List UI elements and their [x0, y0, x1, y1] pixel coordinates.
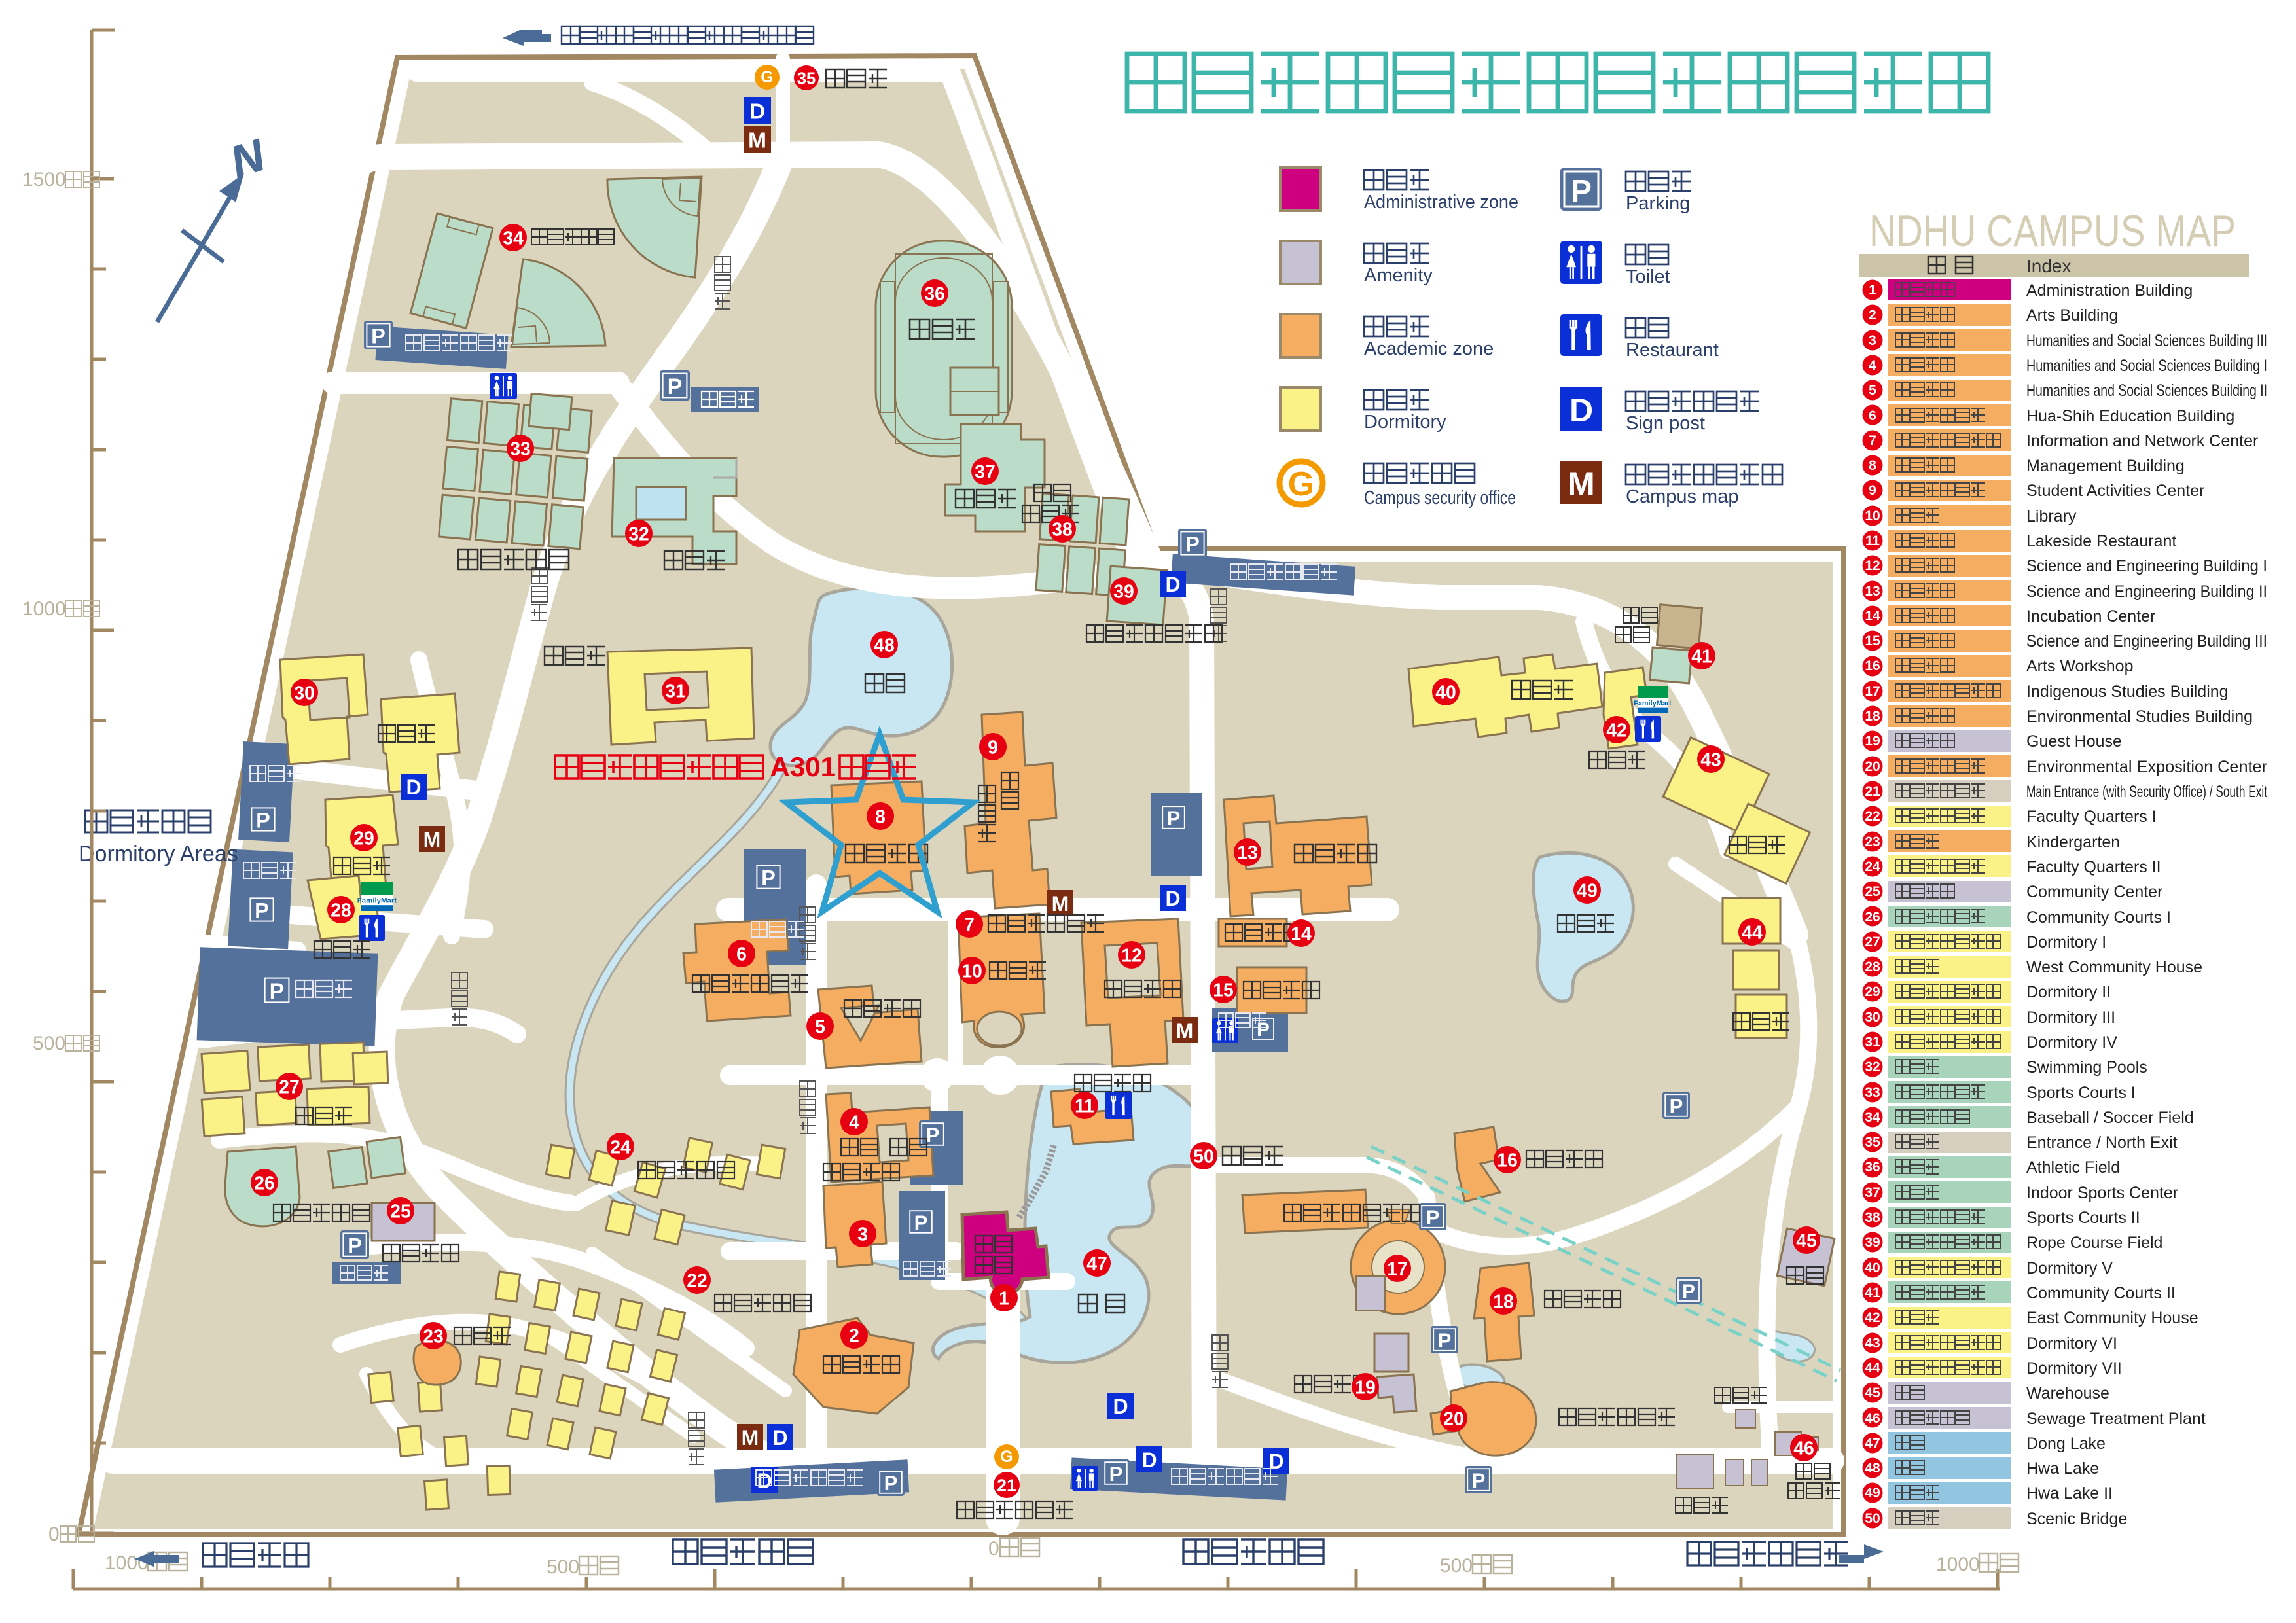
svg-text:20: 20	[1443, 1409, 1464, 1430]
svg-text:33: 33	[510, 439, 531, 460]
svg-text:10: 10	[961, 961, 982, 982]
svg-text:11: 11	[1075, 1096, 1094, 1117]
svg-text:Administration Building: Administration Building	[2026, 281, 2193, 300]
svg-text:39: 39	[1865, 1235, 1880, 1250]
svg-text:M: M	[1176, 1019, 1194, 1043]
svg-text:Science and Engineering Buildi: Science and Engineering Building I	[2026, 557, 2267, 575]
svg-text:37: 37	[975, 462, 996, 483]
svg-text:48: 48	[874, 635, 895, 656]
svg-text:17: 17	[1865, 684, 1880, 699]
svg-text:P: P	[256, 808, 270, 832]
svg-text:P: P	[1109, 1463, 1123, 1486]
svg-text:G: G	[1000, 1448, 1013, 1466]
svg-text:29: 29	[1865, 984, 1880, 999]
svg-text:Kindergarten: Kindergarten	[2026, 833, 2120, 851]
svg-text:39: 39	[1113, 582, 1134, 603]
svg-text:3: 3	[857, 1224, 868, 1245]
svg-text:24: 24	[610, 1137, 631, 1158]
svg-text:Indoor Sports Center: Indoor Sports Center	[2026, 1184, 2178, 1202]
svg-text:Dong Lake: Dong Lake	[2026, 1435, 2106, 1453]
svg-text:P: P	[1571, 174, 1592, 209]
svg-text:27: 27	[279, 1077, 300, 1098]
svg-text:41: 41	[1865, 1285, 1880, 1300]
svg-text:7: 7	[964, 915, 975, 936]
svg-text:5: 5	[815, 1017, 825, 1038]
svg-text:500: 500	[33, 1033, 65, 1054]
svg-text:16: 16	[1497, 1150, 1518, 1171]
svg-text:19: 19	[1865, 734, 1880, 749]
svg-text:29: 29	[353, 829, 374, 849]
svg-text:Dormitory II: Dormitory II	[2026, 983, 2111, 1001]
svg-text:P: P	[348, 1234, 362, 1257]
svg-text:48: 48	[1865, 1461, 1880, 1476]
svg-text:Environmental Exposition Cente: Environmental Exposition Center	[2026, 758, 2267, 776]
svg-text:32: 32	[1865, 1060, 1880, 1075]
svg-text:32: 32	[628, 524, 649, 545]
svg-text:Sewage Treatment Plant: Sewage Treatment Plant	[2026, 1410, 2206, 1428]
svg-text:Hwa Lake: Hwa Lake	[2026, 1459, 2099, 1478]
svg-text:P: P	[1682, 1281, 1695, 1302]
svg-text:0: 0	[48, 1524, 60, 1545]
svg-text:Guest House: Guest House	[2026, 732, 2122, 751]
svg-text:5: 5	[1869, 383, 1876, 398]
svg-text:31: 31	[665, 681, 686, 702]
svg-text:Dormitory VI: Dormitory VI	[2026, 1334, 2117, 1353]
svg-text:M: M	[423, 828, 441, 851]
svg-text:D: D	[406, 776, 421, 799]
svg-text:Dormitory III: Dormitory III	[2026, 1008, 2115, 1027]
svg-text:Dormitory V: Dormitory V	[2026, 1259, 2113, 1277]
svg-text:33: 33	[1865, 1085, 1880, 1100]
svg-text:Administrative zone: Administrative zone	[1364, 192, 1518, 213]
svg-text:A301: A301	[770, 751, 836, 782]
svg-text:P: P	[270, 979, 285, 1004]
svg-text:46: 46	[1793, 1438, 1814, 1459]
svg-text:21: 21	[1865, 784, 1880, 799]
svg-text:1: 1	[1869, 283, 1876, 298]
svg-text:Campus map: Campus map	[1626, 486, 1738, 507]
svg-text:Dormitory Areas: Dormitory Areas	[79, 842, 238, 866]
svg-text:Warehouse: Warehouse	[2026, 1384, 2109, 1402]
svg-text:Community Courts II: Community Courts II	[2026, 1284, 2176, 1302]
svg-text:Arts Workshop: Arts Workshop	[2026, 657, 2133, 675]
svg-text:P: P	[926, 1124, 940, 1147]
svg-text:13: 13	[1865, 584, 1880, 599]
svg-text:M: M	[1052, 892, 1069, 916]
svg-text:21: 21	[997, 1476, 1016, 1495]
svg-text:45: 45	[1796, 1231, 1817, 1252]
svg-text:Dormitory I: Dormitory I	[2026, 933, 2106, 952]
svg-text:38: 38	[1865, 1210, 1880, 1225]
svg-text:27: 27	[1865, 935, 1880, 950]
svg-text:Humanities and Social Sciences: Humanities and Social Sciences Building …	[2026, 357, 2267, 375]
svg-text:Parking: Parking	[1626, 193, 1690, 214]
svg-text:18: 18	[1493, 1292, 1514, 1313]
svg-text:D: D	[772, 1426, 787, 1450]
svg-text:Humanities and Social Sciences: Humanities and Social Sciences Building …	[2026, 332, 2267, 350]
svg-text:42: 42	[1865, 1310, 1880, 1325]
svg-text:30: 30	[1865, 1010, 1880, 1025]
svg-text:17: 17	[1387, 1259, 1408, 1280]
svg-text:Entrance / North Exit: Entrance / North Exit	[2026, 1133, 2178, 1152]
svg-text:3: 3	[1869, 333, 1876, 348]
svg-text:500: 500	[1440, 1555, 1473, 1577]
svg-text:43: 43	[1700, 750, 1721, 771]
svg-text:Community Center: Community Center	[2026, 883, 2162, 901]
svg-text:Faculty Quarters I: Faculty Quarters I	[2026, 808, 2157, 826]
svg-text:FamilyMart: FamilyMart	[357, 897, 397, 905]
svg-text:25: 25	[1865, 884, 1880, 899]
svg-text:M: M	[742, 1426, 759, 1450]
svg-text:43: 43	[1865, 1336, 1880, 1351]
svg-text:P: P	[1426, 1206, 1440, 1229]
svg-text:P: P	[371, 324, 386, 348]
svg-text:26: 26	[1865, 910, 1880, 925]
svg-text:Management Building: Management Building	[2026, 457, 2185, 475]
svg-text:12: 12	[1865, 558, 1880, 573]
svg-text:15: 15	[1213, 980, 1234, 1001]
svg-text:44: 44	[1742, 923, 1763, 944]
svg-text:Rope Course Field: Rope Course Field	[2026, 1234, 2162, 1252]
svg-text:8: 8	[875, 807, 886, 828]
svg-text:22: 22	[1865, 809, 1880, 824]
svg-text:26: 26	[254, 1173, 275, 1194]
svg-text:18: 18	[1865, 709, 1880, 724]
svg-text:9: 9	[1869, 483, 1876, 498]
svg-text:Athletic Field: Athletic Field	[2026, 1158, 2120, 1177]
svg-text:8: 8	[1869, 458, 1876, 473]
svg-text:Baseball / Soccer Field: Baseball / Soccer Field	[2026, 1109, 2194, 1127]
svg-text:Main Entrance (with Security O: Main Entrance (with Security Office) / S…	[2026, 783, 2267, 801]
svg-text:Library: Library	[2026, 507, 2077, 526]
svg-text:Science and Engineering Buildi: Science and Engineering Building II	[2026, 582, 2267, 601]
svg-text:P: P	[1185, 532, 1200, 556]
svg-text:2: 2	[849, 1326, 859, 1347]
svg-text:Faculty Quarters II: Faculty Quarters II	[2026, 858, 2161, 876]
svg-text:34: 34	[1865, 1110, 1880, 1125]
svg-text:500: 500	[547, 1556, 579, 1578]
svg-text:1000: 1000	[1936, 1554, 1980, 1575]
svg-text:28: 28	[1865, 959, 1880, 974]
svg-text:1000: 1000	[22, 598, 66, 620]
svg-text:Lakeside Restaurant: Lakeside Restaurant	[2026, 532, 2176, 550]
svg-text:D: D	[1113, 1395, 1128, 1418]
svg-text:22: 22	[687, 1271, 708, 1292]
svg-text:D: D	[749, 100, 765, 124]
svg-text:34: 34	[503, 228, 524, 249]
svg-text:14: 14	[1865, 609, 1880, 624]
svg-text:Sports Courts II: Sports Courts II	[2026, 1209, 2140, 1227]
svg-text:Humanities and Social Sciences: Humanities and Social Sciences Building …	[2026, 382, 2267, 400]
svg-text:Toilet: Toilet	[1626, 266, 1670, 287]
svg-text:6: 6	[736, 944, 747, 965]
svg-text:M: M	[748, 129, 766, 153]
svg-text:P: P	[761, 866, 776, 889]
svg-text:4: 4	[1869, 358, 1876, 373]
svg-text:Index: Index	[2026, 256, 2072, 276]
svg-text:Incubation Center: Incubation Center	[2026, 607, 2155, 626]
svg-text:D: D	[1165, 887, 1180, 910]
svg-text:40: 40	[1435, 683, 1456, 704]
svg-text:23: 23	[423, 1327, 444, 1347]
svg-text:35: 35	[1865, 1135, 1880, 1150]
svg-text:Dormitory IV: Dormitory IV	[2026, 1033, 2117, 1052]
svg-text:Arts Building: Arts Building	[2026, 306, 2118, 325]
svg-text:M: M	[1568, 465, 1595, 502]
svg-text:P: P	[1438, 1329, 1452, 1352]
svg-text:50: 50	[1865, 1511, 1880, 1526]
svg-text:14: 14	[1291, 924, 1312, 945]
svg-text:19: 19	[1355, 1378, 1376, 1399]
svg-text:2: 2	[1869, 308, 1876, 323]
svg-text:44: 44	[1865, 1361, 1880, 1376]
svg-text:47: 47	[1086, 1254, 1107, 1275]
svg-text:7: 7	[1869, 433, 1876, 448]
svg-text:P: P	[1670, 1095, 1683, 1118]
svg-text:15: 15	[1865, 633, 1880, 649]
svg-text:Student Activities Center: Student Activities Center	[2026, 482, 2204, 500]
svg-text:20: 20	[1865, 759, 1880, 774]
svg-text:Restaurant: Restaurant	[1626, 340, 1719, 361]
svg-text:P: P	[255, 899, 269, 922]
svg-text:50: 50	[1193, 1147, 1214, 1168]
svg-text:37: 37	[1865, 1185, 1880, 1200]
svg-text:Information and Network Center: Information and Network Center	[2026, 432, 2258, 450]
svg-text:Hua-Shih Education Building: Hua-Shih Education Building	[2026, 407, 2234, 425]
svg-text:P: P	[1167, 807, 1181, 830]
svg-text:30: 30	[294, 683, 315, 704]
svg-text:Campus security office: Campus security office	[1364, 488, 1516, 508]
svg-text:D: D	[1165, 573, 1180, 596]
svg-text:FamilyMart: FamilyMart	[1634, 700, 1672, 707]
svg-text:46: 46	[1865, 1411, 1880, 1426]
svg-text:0: 0	[988, 1538, 999, 1560]
svg-text:P: P	[668, 374, 683, 399]
svg-text:Community Courts I: Community Courts I	[2026, 908, 2171, 927]
svg-text:NDHU CAMPUS MAP: NDHU CAMPUS MAP	[1869, 206, 2236, 256]
svg-text:1: 1	[999, 1289, 1009, 1310]
svg-text:45: 45	[1865, 1385, 1880, 1400]
svg-text:1000: 1000	[105, 1552, 149, 1574]
svg-text:13: 13	[1237, 843, 1258, 864]
svg-text:Sports Courts I: Sports Courts I	[2026, 1084, 2136, 1102]
svg-text:G: G	[761, 69, 773, 86]
svg-text:36: 36	[924, 284, 945, 305]
svg-text:Indigenous Studies Building: Indigenous Studies Building	[2026, 683, 2229, 701]
svg-text:Science and Engineering Buildi: Science and Engineering Building III	[2026, 632, 2267, 651]
svg-text:25: 25	[390, 1202, 411, 1222]
svg-text:9: 9	[988, 738, 998, 758]
svg-text:4: 4	[849, 1113, 859, 1133]
svg-text:10: 10	[1865, 508, 1880, 524]
svg-text:16: 16	[1865, 658, 1880, 673]
svg-text:Environmental Studies Building: Environmental Studies Building	[2026, 707, 2253, 726]
svg-text:11: 11	[1865, 533, 1880, 548]
svg-text:D: D	[1141, 1448, 1157, 1472]
svg-text:Scenic Bridge: Scenic Bridge	[2026, 1510, 2127, 1528]
svg-text:41: 41	[1691, 647, 1712, 668]
svg-text:6: 6	[1869, 408, 1876, 423]
svg-text:East Community House: East Community House	[2026, 1309, 2198, 1327]
svg-text:49: 49	[1865, 1486, 1880, 1501]
svg-text:28: 28	[331, 901, 351, 921]
svg-text:P: P	[884, 1472, 898, 1495]
svg-text:42: 42	[1606, 721, 1627, 741]
svg-text:47: 47	[1865, 1436, 1880, 1451]
svg-text:D: D	[1570, 392, 1593, 429]
svg-text:24: 24	[1865, 859, 1880, 874]
svg-text:Swimming Pools: Swimming Pools	[2026, 1058, 2147, 1077]
svg-text:G: G	[1288, 465, 1314, 503]
svg-text:12: 12	[1121, 946, 1142, 967]
svg-text:Dormitory: Dormitory	[1364, 412, 1446, 433]
svg-text:Sign post: Sign post	[1626, 413, 1705, 434]
svg-text:Amenity: Amenity	[1364, 265, 1433, 286]
svg-text:49: 49	[1577, 881, 1598, 902]
svg-text:Dormitory VII: Dormitory VII	[2026, 1359, 2122, 1378]
svg-text:35: 35	[797, 70, 816, 88]
svg-text:31: 31	[1865, 1035, 1880, 1050]
svg-text:23: 23	[1865, 834, 1880, 849]
svg-text:P: P	[1472, 1469, 1486, 1492]
svg-text:1500: 1500	[22, 169, 66, 190]
svg-text:36: 36	[1865, 1160, 1880, 1175]
svg-text:West Community House: West Community House	[2026, 958, 2202, 976]
svg-text:40: 40	[1865, 1260, 1880, 1275]
svg-text:38: 38	[1052, 520, 1073, 541]
svg-text:P: P	[914, 1211, 928, 1234]
svg-text:Hwa Lake II: Hwa Lake II	[2026, 1484, 2113, 1503]
svg-text:Academic zone: Academic zone	[1364, 338, 1494, 359]
